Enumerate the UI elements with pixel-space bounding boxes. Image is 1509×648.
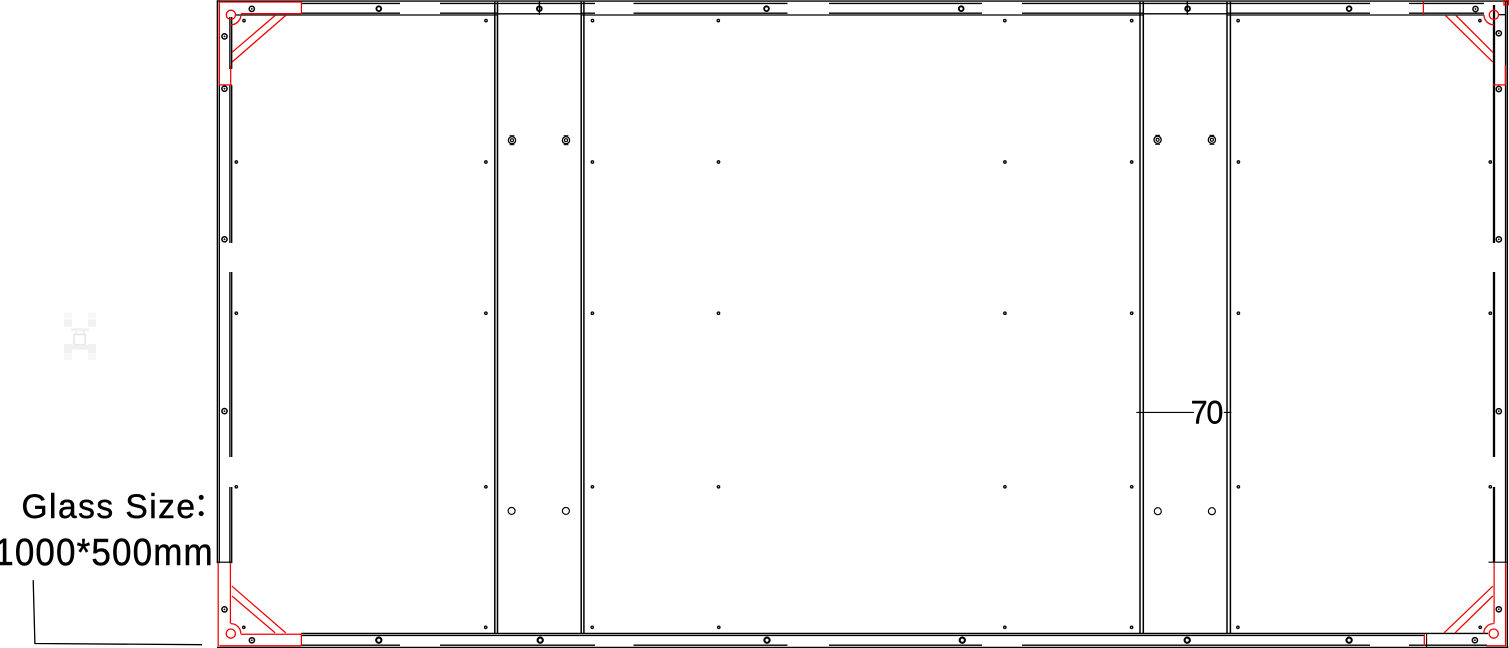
svg-text:1000*500mm: 1000*500mm	[0, 531, 214, 574]
svg-text:Glass Size: Glass Size	[22, 488, 197, 526]
svg-text:70: 70	[1191, 394, 1223, 431]
